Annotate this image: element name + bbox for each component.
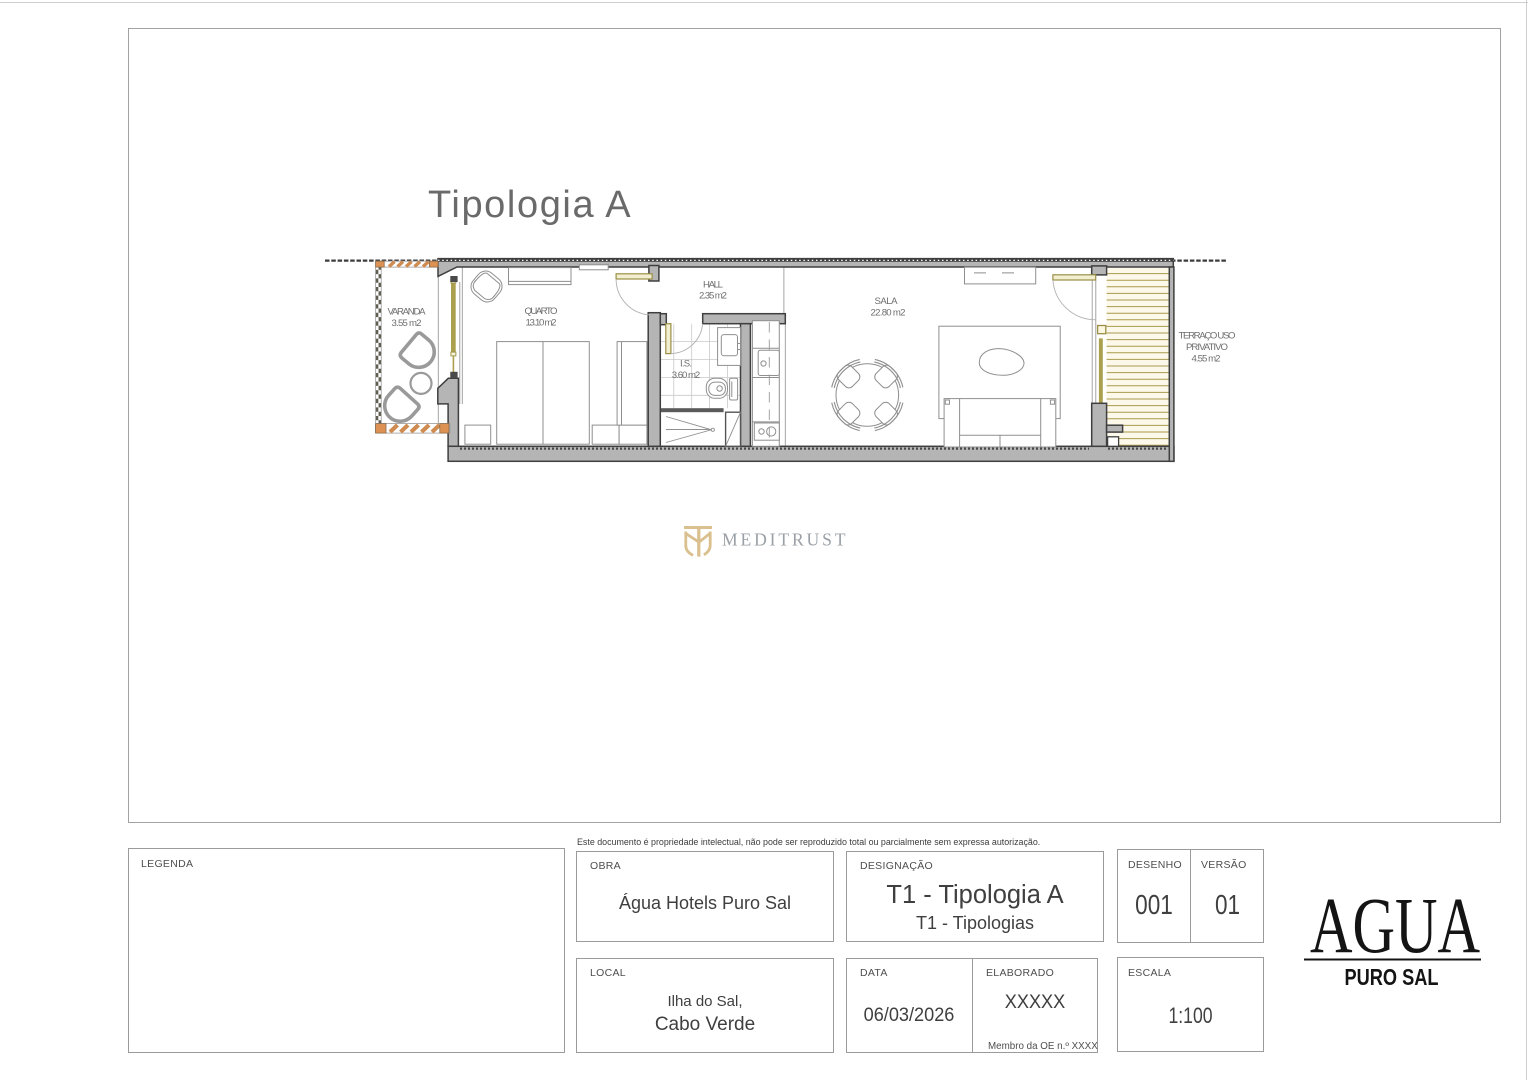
svg-text:HALL: HALL [703,280,724,291]
svg-text:I.S.: I.S. [680,359,692,370]
svg-text:MEDITRUST: MEDITRUST [722,529,846,549]
svg-text:4.55 m2: 4.55 m2 [1192,354,1221,365]
svg-text:VARANDA: VARANDA [388,307,427,318]
svg-text:3.55 m2: 3.55 m2 [392,318,422,329]
svg-text:2.35 m2: 2.35 m2 [699,291,727,302]
svg-text:PURO SAL: PURO SAL [1345,964,1439,990]
svg-text:PRIVATIVO: PRIVATIVO [1186,342,1228,353]
svg-text:22.80 m2: 22.80 m2 [871,308,906,319]
svg-text:AGUA: AGUA [1310,883,1480,970]
svg-text:QUARTO: QUARTO [525,306,558,317]
svg-text:TERRAÇO USO: TERRAÇO USO [1179,331,1236,342]
svg-text:SALA: SALA [875,296,899,307]
svg-text:3.60 m2: 3.60 m2 [672,370,701,381]
svg-text:13.10 m2: 13.10 m2 [526,318,557,329]
